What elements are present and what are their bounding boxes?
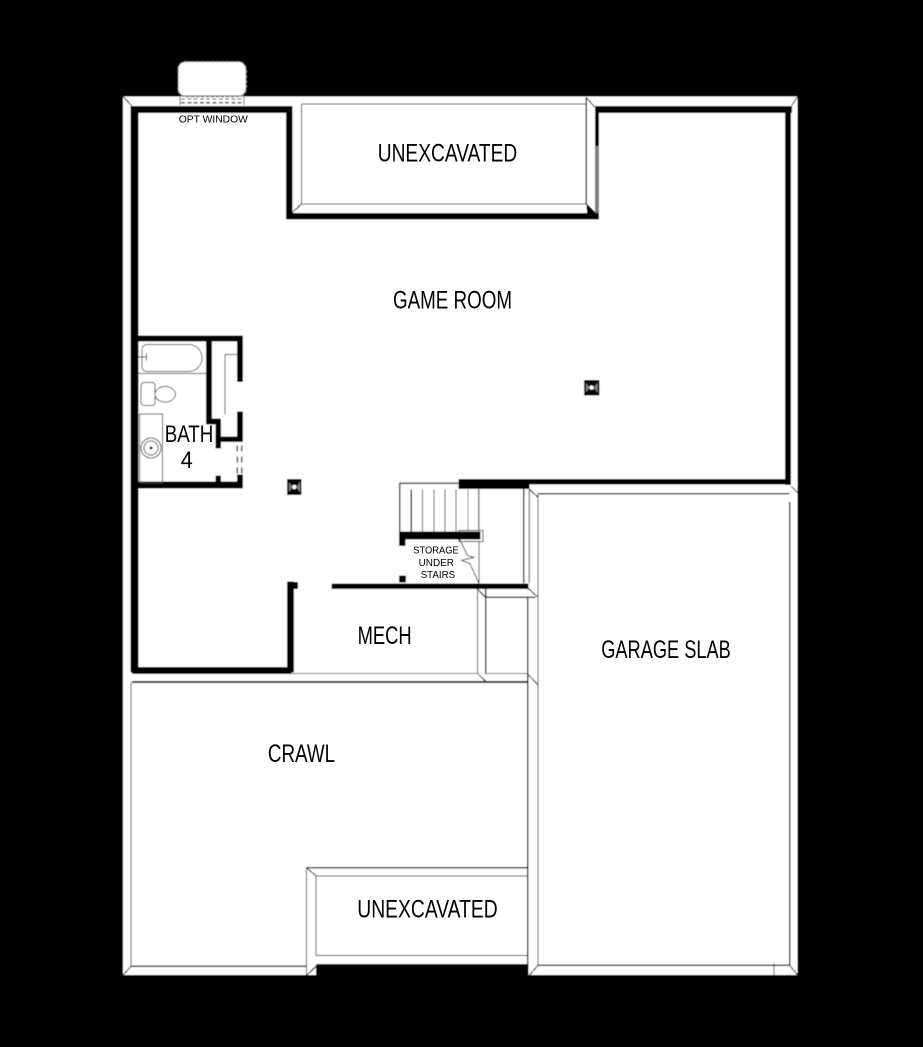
- svg-text:STORAGE: STORAGE: [413, 545, 459, 557]
- svg-text:4: 4: [181, 447, 193, 474]
- svg-text:UNEXCAVATED: UNEXCAVATED: [378, 140, 518, 168]
- svg-text:CRAWL: CRAWL: [268, 740, 335, 768]
- svg-text:MECH: MECH: [358, 622, 412, 650]
- svg-text:GAME ROOM: GAME ROOM: [393, 287, 512, 315]
- svg-text:BATH: BATH: [165, 421, 214, 448]
- svg-text:UNDER: UNDER: [419, 557, 455, 569]
- svg-text:STAIRS: STAIRS: [421, 569, 455, 581]
- svg-text:GARAGE SLAB: GARAGE SLAB: [601, 636, 731, 664]
- svg-text:UNEXCAVATED: UNEXCAVATED: [357, 896, 497, 924]
- svg-text:OPT WINDOW: OPT WINDOW: [179, 115, 249, 126]
